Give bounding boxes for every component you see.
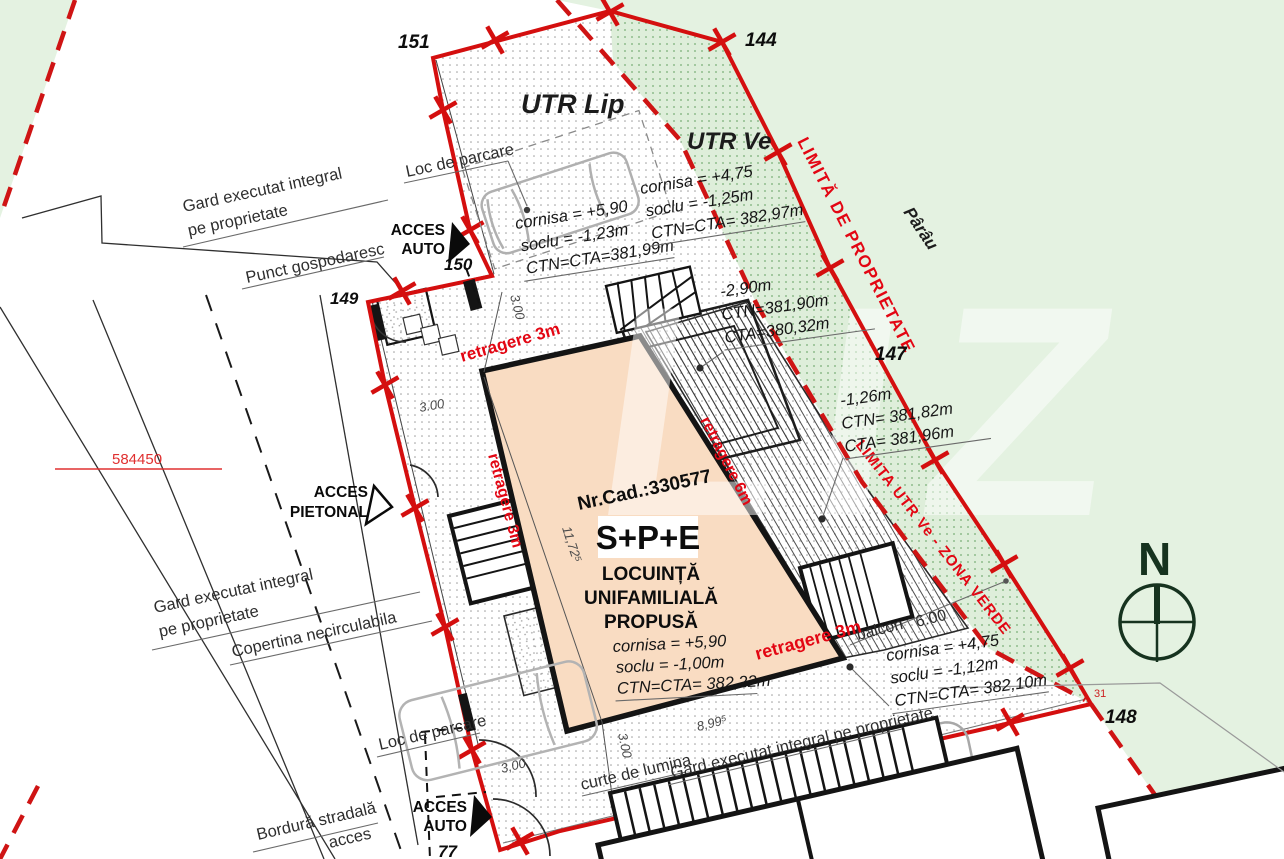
compass-n-label: N	[1138, 533, 1171, 585]
access-auto-top-line1: ACCES	[391, 222, 445, 239]
site-plan: LIZ	[0, 0, 1284, 859]
parcel-149: 149	[330, 289, 359, 308]
height-regime: S+P+E	[596, 519, 701, 556]
access-auto-bottom-line1: ACCES	[413, 799, 467, 816]
access-auto-bottom-line2: AUTO	[423, 818, 467, 835]
grid-coordinate: 584450	[112, 451, 162, 468]
zone-utr-ve: UTR Ve	[687, 128, 771, 155]
parcel-144: 144	[745, 30, 777, 51]
parcel-31: 31	[1094, 688, 1106, 700]
parcel-148: 148	[1105, 707, 1137, 728]
access-ped-line1: ACCES	[314, 484, 368, 501]
building-title-2: UNIFAMILIALĂ	[584, 587, 718, 609]
parcel-151: 151	[398, 32, 430, 53]
parcel-77: 77	[438, 842, 458, 859]
building-title-3: PROPUSĂ	[604, 611, 698, 633]
access-ped-line2: PIETONAL	[290, 504, 368, 521]
parcel-150: 150	[444, 255, 473, 274]
parcel-147: 147	[875, 344, 908, 365]
access-auto-top-line2: AUTO	[401, 241, 445, 258]
building-title-1: LOCUINȚĂ	[602, 563, 700, 585]
zone-utr-lip: UTR Lip	[521, 89, 624, 119]
